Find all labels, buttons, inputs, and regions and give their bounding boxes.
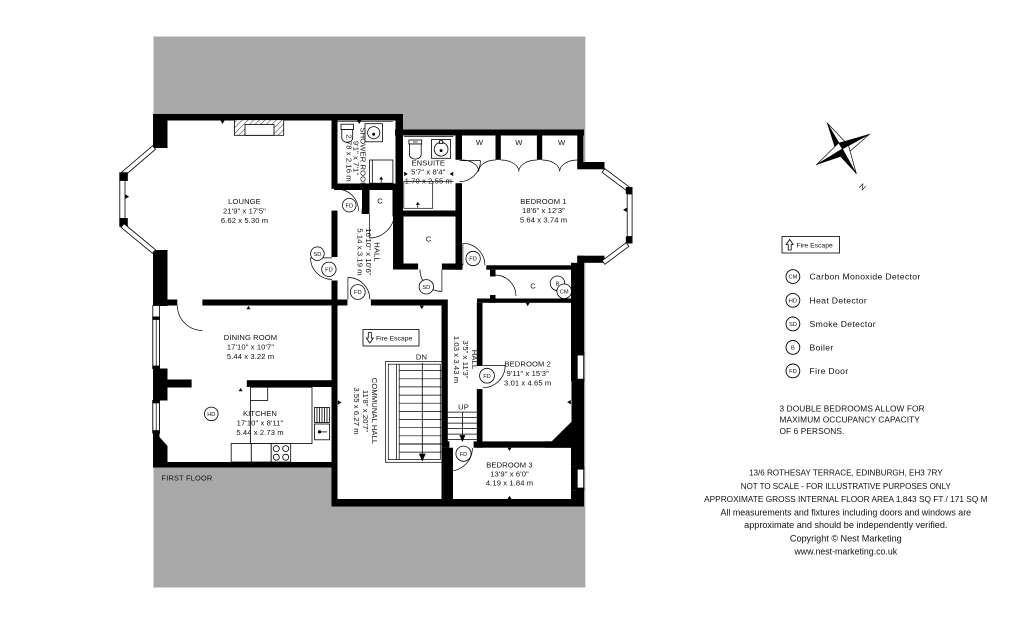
svg-text:www.nest-marketing.co.uk: www.nest-marketing.co.uk: [793, 546, 897, 556]
svg-text:21'9" x 17'5": 21'9" x 17'5": [223, 207, 266, 216]
svg-text:13'9" x 6'0": 13'9" x 6'0": [490, 470, 529, 479]
svg-text:BEDROOM 2: BEDROOM 2: [504, 360, 550, 369]
svg-text:SD: SD: [422, 285, 430, 291]
svg-text:3.55 x 6.27 m: 3.55 x 6.27 m: [352, 387, 361, 434]
svg-text:All measurements and fixtures: All measurements and fixtures including …: [720, 508, 971, 518]
svg-text:C: C: [426, 234, 432, 243]
svg-text:5.44 x 2.73 m: 5.44 x 2.73 m: [236, 428, 283, 437]
svg-text:11'8" x 20'7": 11'8" x 20'7": [361, 390, 370, 433]
svg-text:approximate and should be inde: approximate and should be independently …: [744, 520, 947, 530]
svg-text:5.44 x 3.22 m: 5.44 x 3.22 m: [227, 352, 274, 361]
svg-text:BEDROOM 1: BEDROOM 1: [520, 197, 566, 206]
svg-text:FD: FD: [789, 369, 797, 375]
svg-text:17'10" x 8'11": 17'10" x 8'11": [237, 419, 284, 428]
svg-text:B: B: [791, 346, 795, 352]
svg-text:Carbon Monoxide Detector: Carbon Monoxide Detector: [810, 272, 921, 282]
svg-text:5'7" x 8'4": 5'7" x 8'4": [411, 167, 446, 176]
svg-text:9'11" x 15'3": 9'11" x 15'3": [507, 369, 550, 378]
svg-text:ENSUITE: ENSUITE: [411, 158, 445, 167]
svg-text:18'6" x 12'3": 18'6" x 12'3": [522, 206, 565, 215]
svg-text:5.64 x 3.74 m: 5.64 x 3.74 m: [520, 216, 567, 225]
svg-text:FD: FD: [483, 374, 491, 380]
svg-text:Fire Escape: Fire Escape: [797, 243, 833, 250]
svg-text:FD: FD: [354, 290, 362, 296]
svg-text:NOT TO SCALE - FOR ILLUSTRATIV: NOT TO SCALE - FOR ILLUSTRATIVE PURPOSES…: [741, 482, 952, 491]
svg-text:HALL: HALL: [470, 350, 479, 369]
svg-text:OF 6 PERSONS.: OF 6 PERSONS.: [780, 426, 845, 436]
svg-text:Boiler: Boiler: [810, 342, 834, 352]
svg-text:Heat Detector: Heat Detector: [810, 295, 868, 305]
svg-text:SD: SD: [789, 322, 797, 328]
svg-text:KITCHEN: KITCHEN: [243, 409, 277, 418]
svg-text:W: W: [558, 138, 566, 147]
svg-text:Smoke Detector: Smoke Detector: [810, 319, 877, 329]
svg-text:DINING ROOM: DINING ROOM: [224, 333, 277, 342]
svg-text:1.03 x 3.43 m: 1.03 x 3.43 m: [452, 336, 461, 383]
svg-text:FD: FD: [325, 267, 333, 273]
svg-text:BEDROOM 3: BEDROOM 3: [486, 461, 532, 470]
svg-text:APPROXIMATE GROSS INTERNAL FLO: APPROXIMATE GROSS INTERNAL FLOOR AREA 1,…: [704, 494, 987, 504]
svg-text:CM: CM: [788, 275, 797, 281]
svg-text:5.14 x 3.19 m: 5.14 x 3.19 m: [356, 228, 365, 275]
svg-text:C: C: [530, 282, 536, 291]
svg-text:W: W: [515, 138, 523, 147]
svg-text:3 DOUBLE BEDROOMS ALLOW FOR: 3 DOUBLE BEDROOMS ALLOW FOR: [780, 404, 925, 414]
svg-text:HD: HD: [789, 298, 797, 304]
svg-text:W: W: [476, 138, 484, 147]
svg-text:1.70 x 2.55 m: 1.70 x 2.55 m: [405, 176, 452, 185]
svg-text:3.01 x 4.65 m: 3.01 x 4.65 m: [504, 379, 551, 388]
svg-text:COMMUNAL HALL: COMMUNAL HALL: [370, 378, 379, 444]
svg-text:2.78 x 2.16 m: 2.78 x 2.16 m: [344, 134, 353, 181]
svg-text:SD: SD: [313, 252, 321, 258]
svg-text:FD: FD: [460, 452, 468, 458]
svg-text:FIRST FLOOR: FIRST FLOOR: [162, 473, 213, 482]
svg-text:4.19 x 1.84 m: 4.19 x 1.84 m: [486, 478, 533, 487]
svg-text:17'10" x 10'7": 17'10" x 10'7": [227, 343, 274, 352]
svg-text:FD: FD: [346, 203, 354, 209]
svg-text:13/6 ROTHESAY TERRACE, EDINBUR: 13/6 ROTHESAY TERRACE, EDINBURGH, EH3 7R…: [749, 468, 943, 477]
svg-text:HD: HD: [207, 412, 215, 418]
svg-text:DN: DN: [416, 353, 427, 362]
svg-text:Copyright © Nest Marketing: Copyright © Nest Marketing: [790, 533, 902, 543]
svg-text:Fire Escape: Fire Escape: [376, 336, 412, 343]
svg-text:UP: UP: [458, 403, 469, 412]
svg-text:6.62 x 5.30 m: 6.62 x 5.30 m: [221, 216, 268, 225]
svg-text:MAXIMUM OCCUPANCY CAPACITY: MAXIMUM OCCUPANCY CAPACITY: [780, 415, 921, 425]
svg-text:3'5" x 11'3": 3'5" x 11'3": [461, 340, 470, 378]
svg-text:C: C: [377, 197, 383, 206]
svg-text:CM: CM: [560, 289, 569, 295]
svg-text:Fire Door: Fire Door: [810, 366, 849, 376]
svg-text:FD: FD: [469, 257, 477, 263]
svg-text:LOUNGE: LOUNGE: [228, 197, 261, 206]
